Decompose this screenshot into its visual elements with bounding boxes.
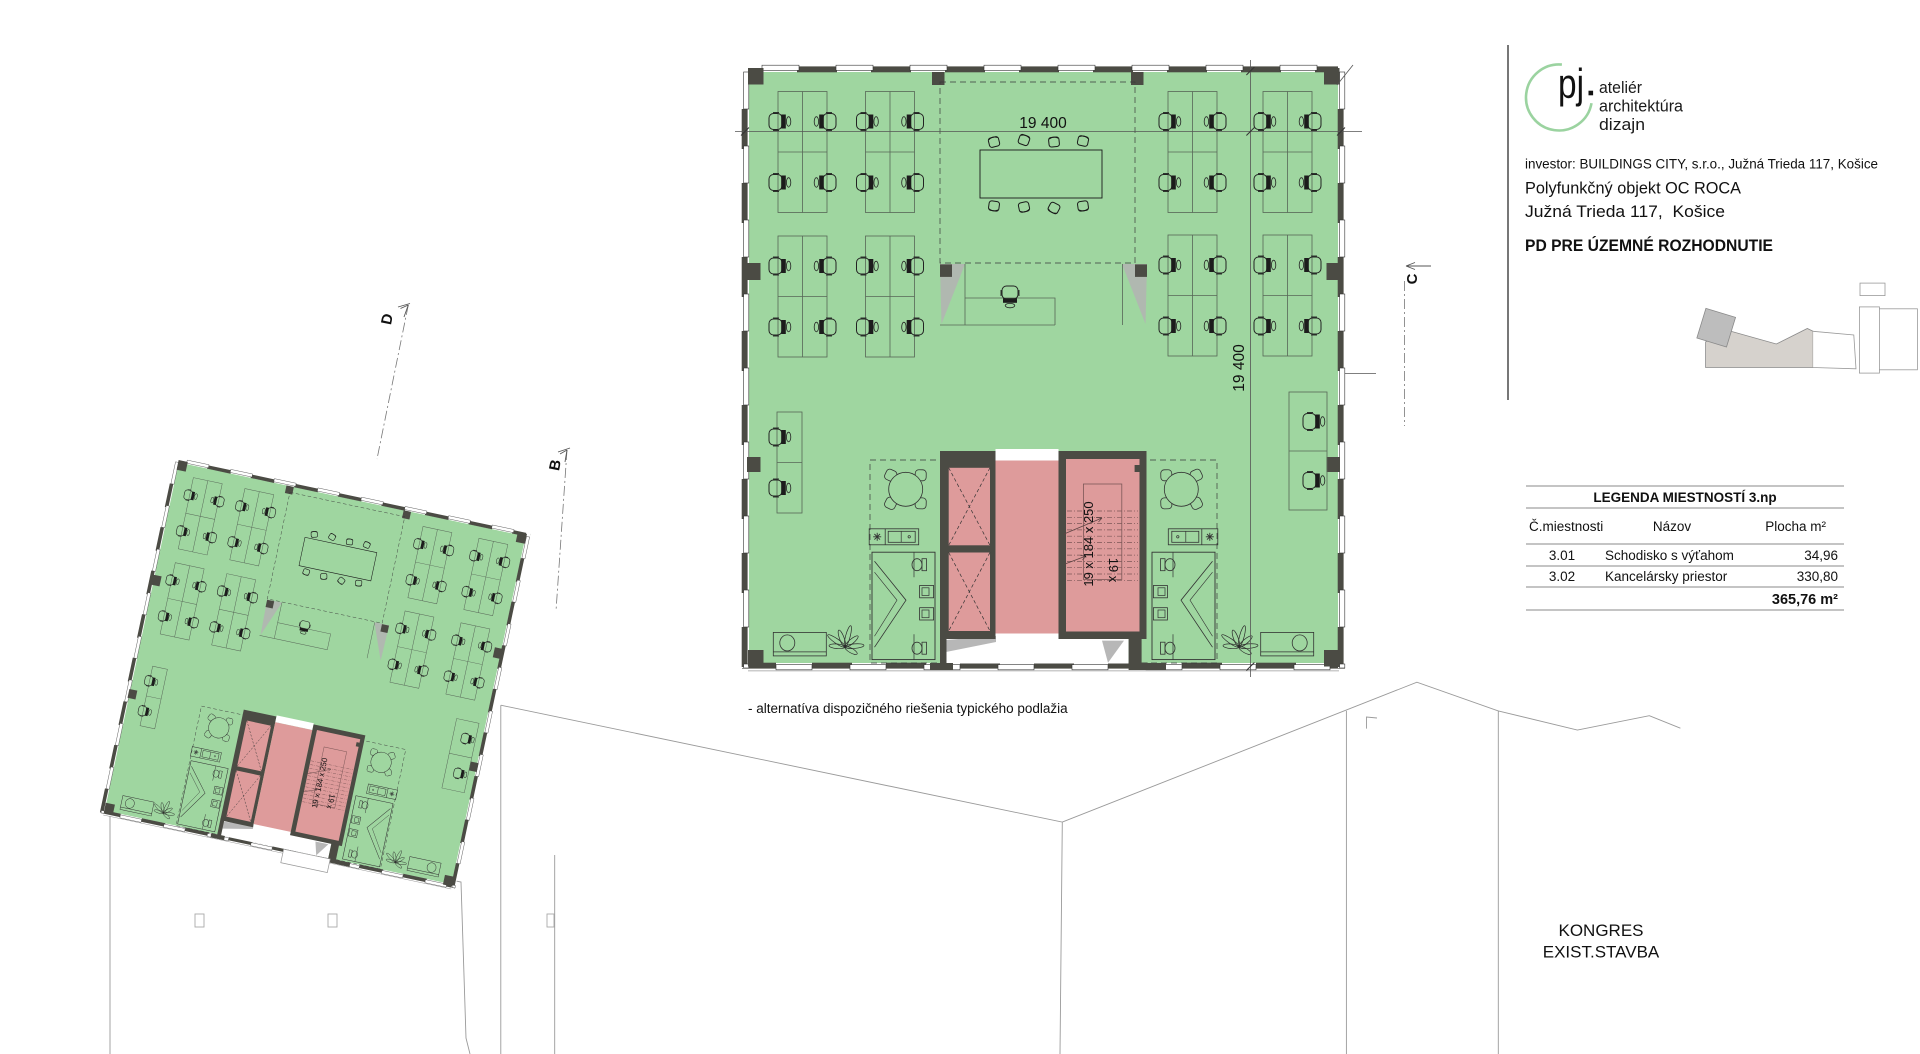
svg-text:Kancelársky priestor: Kancelársky priestor bbox=[1605, 569, 1728, 584]
svg-text:Južná Trieda 117, Košice: Južná Trieda 117, Košice bbox=[1525, 202, 1725, 221]
svg-text:dizajn: dizajn bbox=[1599, 115, 1645, 134]
svg-text:3.01: 3.01 bbox=[1549, 548, 1575, 563]
svg-text:19 400: 19 400 bbox=[1019, 115, 1067, 132]
svg-text:B: B bbox=[546, 458, 565, 472]
svg-text:PD PRE ÚZEMNÉ ROZHODNUTIE: PD PRE ÚZEMNÉ ROZHODNUTIE bbox=[1525, 236, 1773, 255]
svg-text:3.02: 3.02 bbox=[1549, 569, 1575, 584]
svg-text:LEGENDA MIESTNOSTÍ 3.np: LEGENDA MIESTNOSTÍ 3.np bbox=[1593, 490, 1776, 505]
svg-text:330,80: 330,80 bbox=[1797, 569, 1838, 584]
svg-text:C: C bbox=[1404, 273, 1421, 284]
svg-text:pj: pj bbox=[1558, 60, 1584, 107]
svg-text:Schodisko s výťahom: Schodisko s výťahom bbox=[1605, 548, 1734, 563]
svg-text:34,96: 34,96 bbox=[1804, 548, 1838, 563]
svg-text:Názov: Názov bbox=[1653, 519, 1692, 534]
svg-text:ateliér: ateliér bbox=[1599, 78, 1642, 97]
svg-text:Plocha m²: Plocha m² bbox=[1765, 519, 1826, 534]
svg-text:EXIST.STAVBA: EXIST.STAVBA bbox=[1543, 943, 1660, 962]
svg-text:- alternatíva dispozičného rie: - alternatíva dispozičného riešenia typi… bbox=[748, 701, 1068, 716]
svg-text:365,76 m²: 365,76 m² bbox=[1772, 592, 1838, 608]
svg-text:Polyfunkčný objekt OC ROCA: Polyfunkčný objekt OC ROCA bbox=[1525, 179, 1742, 198]
svg-text:architektúra: architektúra bbox=[1599, 97, 1684, 116]
svg-text:investor: BUILDINGS CITY, s.r.: investor: BUILDINGS CITY, s.r.o., Južná … bbox=[1525, 157, 1878, 172]
svg-text:D: D bbox=[378, 312, 397, 326]
svg-text:19 400: 19 400 bbox=[1231, 344, 1248, 392]
svg-text:Č.miestnosti: Č.miestnosti bbox=[1529, 519, 1603, 534]
svg-text:KONGRES: KONGRES bbox=[1558, 921, 1643, 940]
